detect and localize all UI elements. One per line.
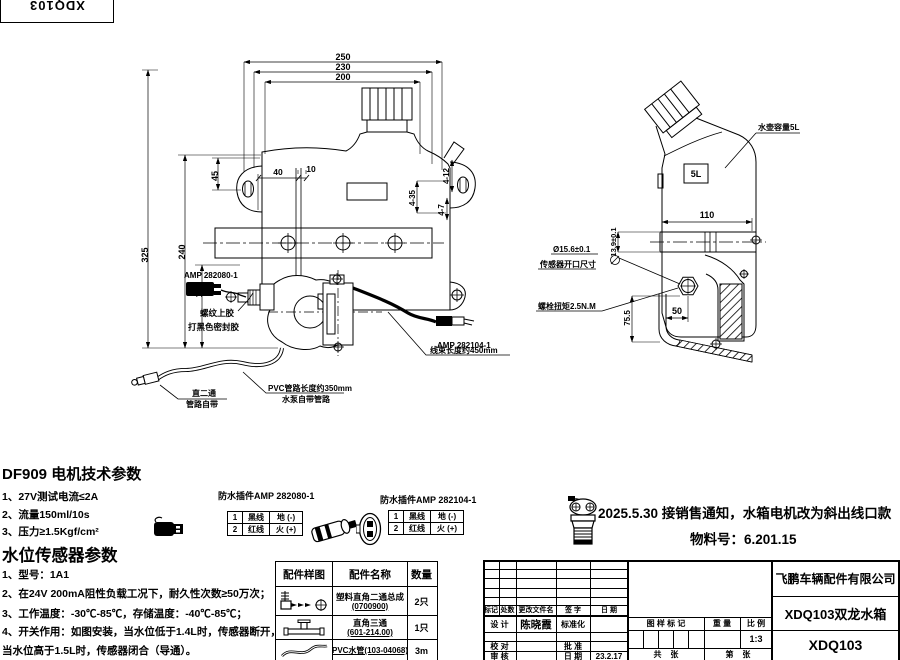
sensor-spec-item: 3、工作温度：-30℃-85℃，存储温度：-40℃-85℃； <box>2 606 247 621</box>
motor-spec-item: 3、压力≥1.5Kgf/cm² <box>2 524 99 539</box>
dim-50: 50 <box>672 306 682 316</box>
dim-depth: 13.9±0.1 <box>609 227 618 256</box>
label-plate <box>347 183 387 200</box>
dim-opening: Ø15.6±0.1 <box>553 245 591 254</box>
parts-row: 直角三通 (601-214.00) 1只 <box>276 616 437 640</box>
pin-cell: 红线 <box>404 523 430 534</box>
pin-cell: 地 (-) <box>270 512 302 523</box>
tilted-cap <box>645 81 705 140</box>
part-code: (601-214.00) <box>347 628 393 637</box>
connector2-pin-table: 1 黑线 地 (-) 2 红线 火 (+) <box>388 510 464 535</box>
capacity-label: 水壶容量5L <box>757 122 799 132</box>
dim-4-12: 4-12 <box>442 167 451 184</box>
drawing-name: XDQ103双龙水箱 <box>772 596 899 630</box>
pin-cell: 1 <box>389 511 403 522</box>
pvc-tube-icon <box>279 642 329 660</box>
pin-cell: 红线 <box>243 524 269 535</box>
elbow-fitting-icon <box>277 589 331 613</box>
sheet-number: 第 张 <box>704 648 772 660</box>
notice-line1: 2025.5.30 接销售通知，水箱电机改为斜出线口款 <box>598 502 891 522</box>
dim-75-5: 75.5 <box>623 310 632 326</box>
scale-value: 1:3 <box>740 630 772 648</box>
bolt-torque-label: 螺栓扭矩2.5N.M <box>538 301 596 311</box>
volume-label: 5L <box>691 169 702 179</box>
notice-line2: 物料号：6.201.15 <box>690 528 797 548</box>
sensor-spec-item: 当水位高于1.5L时，传感器闭合（导通）。 <box>2 643 196 658</box>
rev-col-sign: 签 字 <box>556 605 590 615</box>
hatched-strip <box>676 340 752 362</box>
pin-cell: 火 (+) <box>270 524 302 535</box>
dim-4-35: 4-35 <box>408 189 417 206</box>
rev-col-date: 日 期 <box>590 605 628 615</box>
part-qty: 3m <box>408 640 435 660</box>
rev-col-mark: 标记 <box>483 605 499 615</box>
sensor-harness <box>353 288 474 326</box>
rev-col-count: 处数 <box>499 605 516 615</box>
connector1-title: 防水插件AMP 282080-1 <box>218 489 314 502</box>
dim-200: 200 <box>335 72 350 82</box>
dim-110: 110 <box>700 210 715 220</box>
dim-230: 230 <box>335 62 350 72</box>
dim-4-7: 4-7 <box>437 204 446 216</box>
side-texts: 5L 水壶容量5L 110 13.9±0.1 Ø15.6±0.1 传感器开口尺寸… <box>538 122 799 326</box>
date-value: 23.2.17 <box>590 651 628 660</box>
dim-45: 45 <box>210 171 220 181</box>
pin-cell: 黑线 <box>404 511 430 522</box>
parts-row: 塑料直角二通总成 (0700900) 2只 <box>276 587 437 616</box>
pin-cell: 地 (-) <box>431 511 463 522</box>
designer-name: 陈晓霞 <box>516 616 556 632</box>
hatched-section <box>720 284 742 339</box>
label-pvc-length: PVC管路长度约350mm <box>268 383 352 393</box>
parts-table-header: 配件样图 配件名称 数量 <box>276 562 437 587</box>
pin-cell: 2 <box>389 523 403 534</box>
sensor-receptacle-face-icon <box>356 512 382 546</box>
cap-base <box>367 120 407 132</box>
pin-cell: 黑线 <box>243 512 269 523</box>
dim-250: 250 <box>335 52 350 62</box>
sheet-total: 共 张 <box>628 648 704 660</box>
scale-label: 比 例 <box>740 617 772 630</box>
sensor-spec-item: 1、型号：1A1 <box>2 567 69 582</box>
pin-cell: 1 <box>228 512 242 523</box>
label-black-sealant: 打黑色密封胶 <box>188 322 240 332</box>
tank-side-outline <box>645 81 766 362</box>
sensor-bracket <box>323 270 353 356</box>
part-qty: 1只 <box>408 616 435 639</box>
design-label: 设 计 <box>483 616 516 632</box>
pump-assembly <box>225 276 382 350</box>
audit-label: 审 核 <box>483 651 516 660</box>
part-name: 直角三通 <box>353 618 387 628</box>
sensor-opening-label: 传感器开口尺寸 <box>539 259 596 269</box>
sensor-spec-item: 2、在24V 200mA阻性负载工况下，耐久性次数≥50万次； <box>2 586 270 601</box>
motor-spec-item: 2、流量150ml/10s <box>2 507 90 522</box>
motor-connector-3d-icon <box>152 514 188 542</box>
label-pump-tube: 水泵自带管路 <box>281 394 331 404</box>
dim-40: 40 <box>273 167 283 177</box>
approve-label: 批 准 <box>556 641 590 651</box>
parts-header-name: 配件名称 <box>333 562 408 586</box>
sensor-specs-title: 水位传感器参数 <box>2 542 118 566</box>
label-straight-fitting: 直二通 <box>192 388 216 398</box>
right-ear <box>450 162 475 208</box>
sensor-spec-item: 4、开关作用：如图安装，当水位低于1.4L时，传感器断开， <box>2 624 281 639</box>
rev-col-file: 更改文件名 <box>516 605 556 615</box>
company-name: 飞鹏车辆配件有限公司 <box>772 560 899 596</box>
label-tube-included: 管路自带 <box>186 399 218 409</box>
dim-325: 325 <box>140 247 150 262</box>
drawing-number: XDQ103 <box>772 630 899 660</box>
standardize-label: 标准化 <box>556 616 590 632</box>
front-view: 250 230 200 325 240 133 45 40 10 4-35 4-… <box>130 50 530 430</box>
pin-cell: 火 (+) <box>431 523 463 534</box>
connector1-pin-table: 1 黑线 地 (-) 2 红线 火 (+) <box>227 511 303 536</box>
drawing-canvas: XDQ103 <box>0 0 900 660</box>
dim-133: 133 <box>194 282 204 297</box>
part-name: 塑料直角二通总成 <box>336 592 404 602</box>
parts-header-qty: 数量 <box>408 562 435 586</box>
stamp-label: 图 样 标 记 <box>628 617 704 630</box>
pin-cell: 2 <box>228 524 242 535</box>
date-label: 日 期 <box>556 651 590 660</box>
motor-spec-item: 1、27V测试电流≤2A <box>2 489 98 504</box>
part-code: (0700900) <box>352 602 388 611</box>
label-harness-length: 线束长度约450mm <box>430 345 498 355</box>
parts-header-sample: 配件样图 <box>276 562 333 586</box>
dim-240: 240 <box>177 244 187 259</box>
cap-ribs <box>370 88 402 120</box>
parts-table: 配件样图 配件名称 数量 塑料直角二通总成 (0700900) 2只 <box>275 561 438 660</box>
title-block: 标记 处数 更改文件名 签 字 日 期 设 计 陈晓霞 标准化 校 对 批 准 … <box>483 560 900 660</box>
water-tube <box>131 348 282 387</box>
part-name: PVC水管(103-04068) <box>333 645 408 656</box>
part-qty: 2只 <box>408 587 435 615</box>
spout <box>444 142 464 164</box>
parts-row: PVC水管(103-04068) 3m <box>276 640 437 660</box>
dim-10: 10 <box>306 164 316 174</box>
amp-282104-connector-icon <box>436 316 452 326</box>
top-code-text: XDQ103 <box>29 0 85 13</box>
sensor-plug-3d-icon <box>306 510 360 544</box>
front-texts: 250 230 200 325 240 133 45 40 10 4-35 4-… <box>140 52 498 409</box>
check-label: 校 对 <box>483 641 516 651</box>
label-amp-motor: AMP 282080-1 <box>184 271 238 280</box>
connector2-title: 防水插件AMP 282104-1 <box>380 493 476 506</box>
tee-fitting-icon <box>282 618 326 638</box>
label-thread-glue: 螺纹上胶 <box>200 308 235 318</box>
motor-specs-title: DF909 电机技术参数 <box>2 463 141 484</box>
tube-end-fitting <box>131 372 159 387</box>
weight-label: 重 量 <box>704 617 740 630</box>
top-code-box: XDQ103 <box>0 0 114 23</box>
side-view: 5L 水壶容量5L 110 13.9±0.1 Ø15.6±0.1 传感器开口尺寸… <box>520 78 800 368</box>
